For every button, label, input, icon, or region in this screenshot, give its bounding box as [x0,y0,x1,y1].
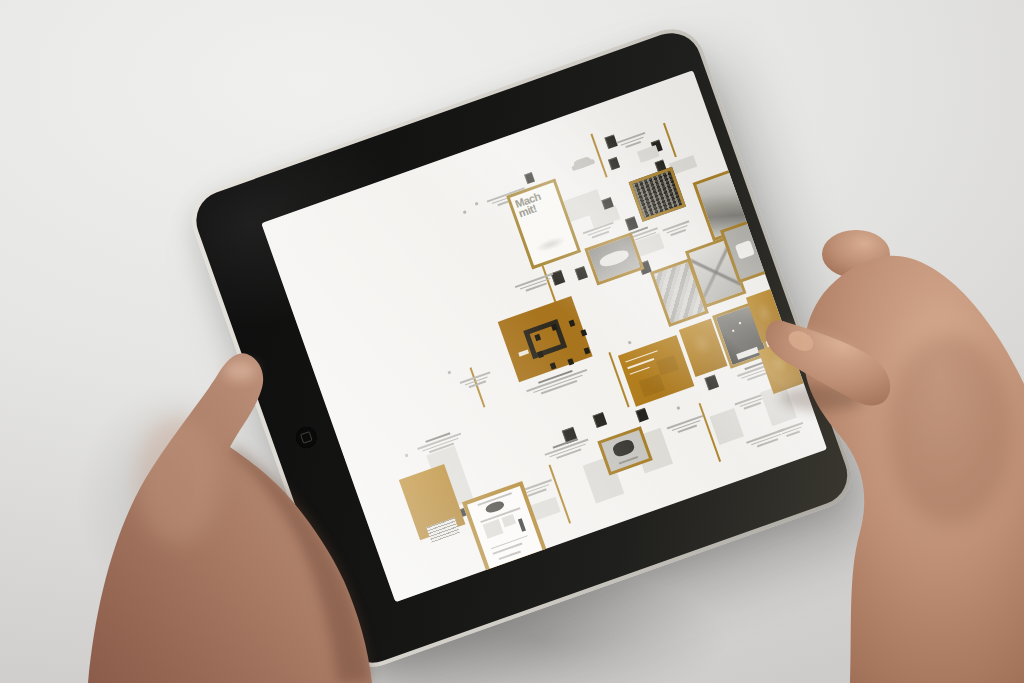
framed-photo-city[interactable] [693,168,755,241]
caption-text-block [666,413,705,436]
dark-thumbnail[interactable] [655,159,667,172]
home-button-icon [300,431,313,444]
dark-thumbnail[interactable] [635,408,648,423]
column-divider [536,248,558,305]
text-placeholder-block [710,408,745,445]
column-divider [608,352,629,407]
text-placeholder-block [669,155,698,175]
marker-dot [628,341,632,345]
photo-scene: { "scene": { "subject": "two hands holdi… [0,0,1024,683]
caption-text-block [517,477,554,499]
section-heading-text [415,427,463,456]
dark-thumbnail[interactable] [625,216,638,231]
framed-photo-car[interactable] [584,232,644,285]
text-placeholder-block [629,233,665,259]
text-placeholder-block [632,428,673,474]
portfolio-canvas[interactable]: Mach mit! [261,70,827,602]
dark-thumbnail[interactable] [601,197,614,212]
section-heading-text [542,433,590,462]
marker-dot [676,406,680,410]
caption-text-block [662,218,692,237]
framed-photo-whiterect[interactable] [720,219,771,283]
dark-thumbnail[interactable] [524,172,535,184]
framed-flyer[interactable] [462,481,548,574]
cloud-logo-icon [573,156,593,170]
dark-thumbnail[interactable] [575,266,588,281]
column-divider [663,123,677,158]
text-placeholder-block [563,189,604,222]
dark-thumbnail[interactable] [638,260,651,275]
column-divider [699,403,722,462]
text-placeholder-block [583,456,625,504]
wall-shadow [850,360,1024,683]
orange-panel-tile[interactable] [618,335,694,407]
orange-swatch-tile[interactable] [399,464,466,540]
column-divider [590,134,607,178]
marker-dot [475,202,479,206]
mach-mit-poster[interactable]: Mach mit! [506,179,581,270]
orange-image-tile[interactable] [758,340,804,394]
dark-thumbnail[interactable] [454,505,474,519]
caption-text-block [745,427,786,450]
text-placeholder-column [426,445,474,510]
ruled-lines-thumbnail[interactable] [426,518,460,543]
caption-text-block [459,370,493,391]
caption-text-block [514,271,555,294]
text-placeholder-block [637,145,660,163]
orange-image-tile[interactable] [679,319,728,377]
dark-thumbnail[interactable] [562,427,578,444]
caption-text-block [734,391,768,412]
marker-dot [405,454,409,458]
section-heading-text [735,357,776,383]
mach-mit-poster-title: Mach mit! [510,185,553,219]
tablet-screen[interactable]: Mach mit! [261,70,827,602]
framed-photo-pixel[interactable] [629,167,686,222]
caption-text-block [582,220,616,241]
dark-thumbnail[interactable] [592,412,607,428]
caption-text-block [486,185,527,208]
screen-glare [261,70,827,602]
text-placeholder-block [529,497,561,521]
marker-dot [447,371,451,375]
caption-text-block [777,420,805,439]
caption-text-block [616,130,648,150]
framed-photo-darkgrad[interactable] [712,302,770,369]
dark-thumbnail[interactable] [651,140,663,153]
text-placeholder-block [589,206,620,229]
framed-photo-car2[interactable] [597,426,652,475]
dark-thumbnail[interactable] [551,270,566,286]
boardgame-photo-tile[interactable] [498,296,593,382]
column-divider [548,465,571,524]
framed-photo-diag[interactable] [650,258,709,327]
orange-image-tile[interactable] [746,289,787,343]
section-heading-text [619,222,660,248]
framed-photo-xfold[interactable] [685,237,747,308]
home-button[interactable] [292,423,320,451]
text-placeholder-block [760,384,797,427]
dark-thumbnail[interactable] [704,375,719,391]
section-heading-text [524,363,589,398]
dark-thumbnail[interactable] [604,134,617,149]
dark-thumbnail[interactable] [608,157,620,170]
marker-dot [463,210,467,214]
column-divider [470,367,486,407]
